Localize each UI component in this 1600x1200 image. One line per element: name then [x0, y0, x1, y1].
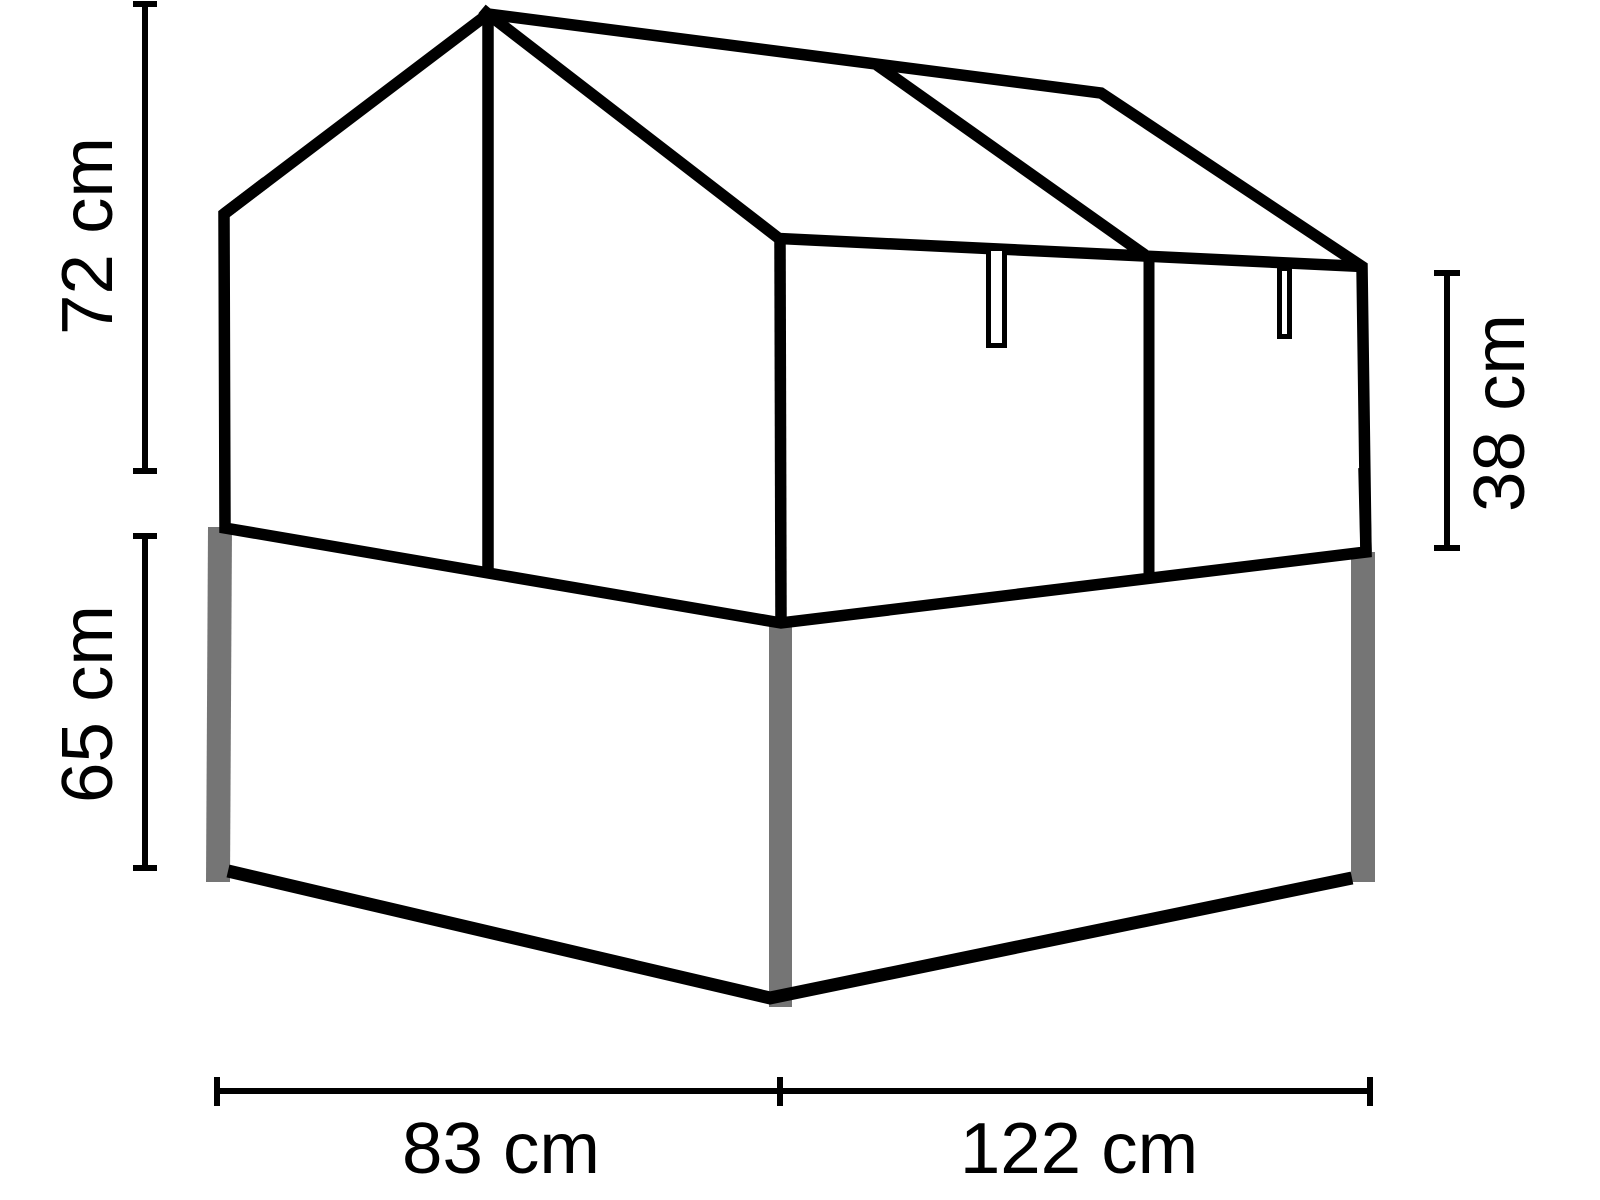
svg-text:83 cm: 83 cm: [402, 1108, 600, 1189]
svg-text:72 cm: 72 cm: [47, 137, 128, 335]
svg-text:65 cm: 65 cm: [47, 605, 128, 803]
svg-text:38 cm: 38 cm: [1459, 314, 1540, 512]
svg-text:122 cm: 122 cm: [960, 1108, 1198, 1189]
